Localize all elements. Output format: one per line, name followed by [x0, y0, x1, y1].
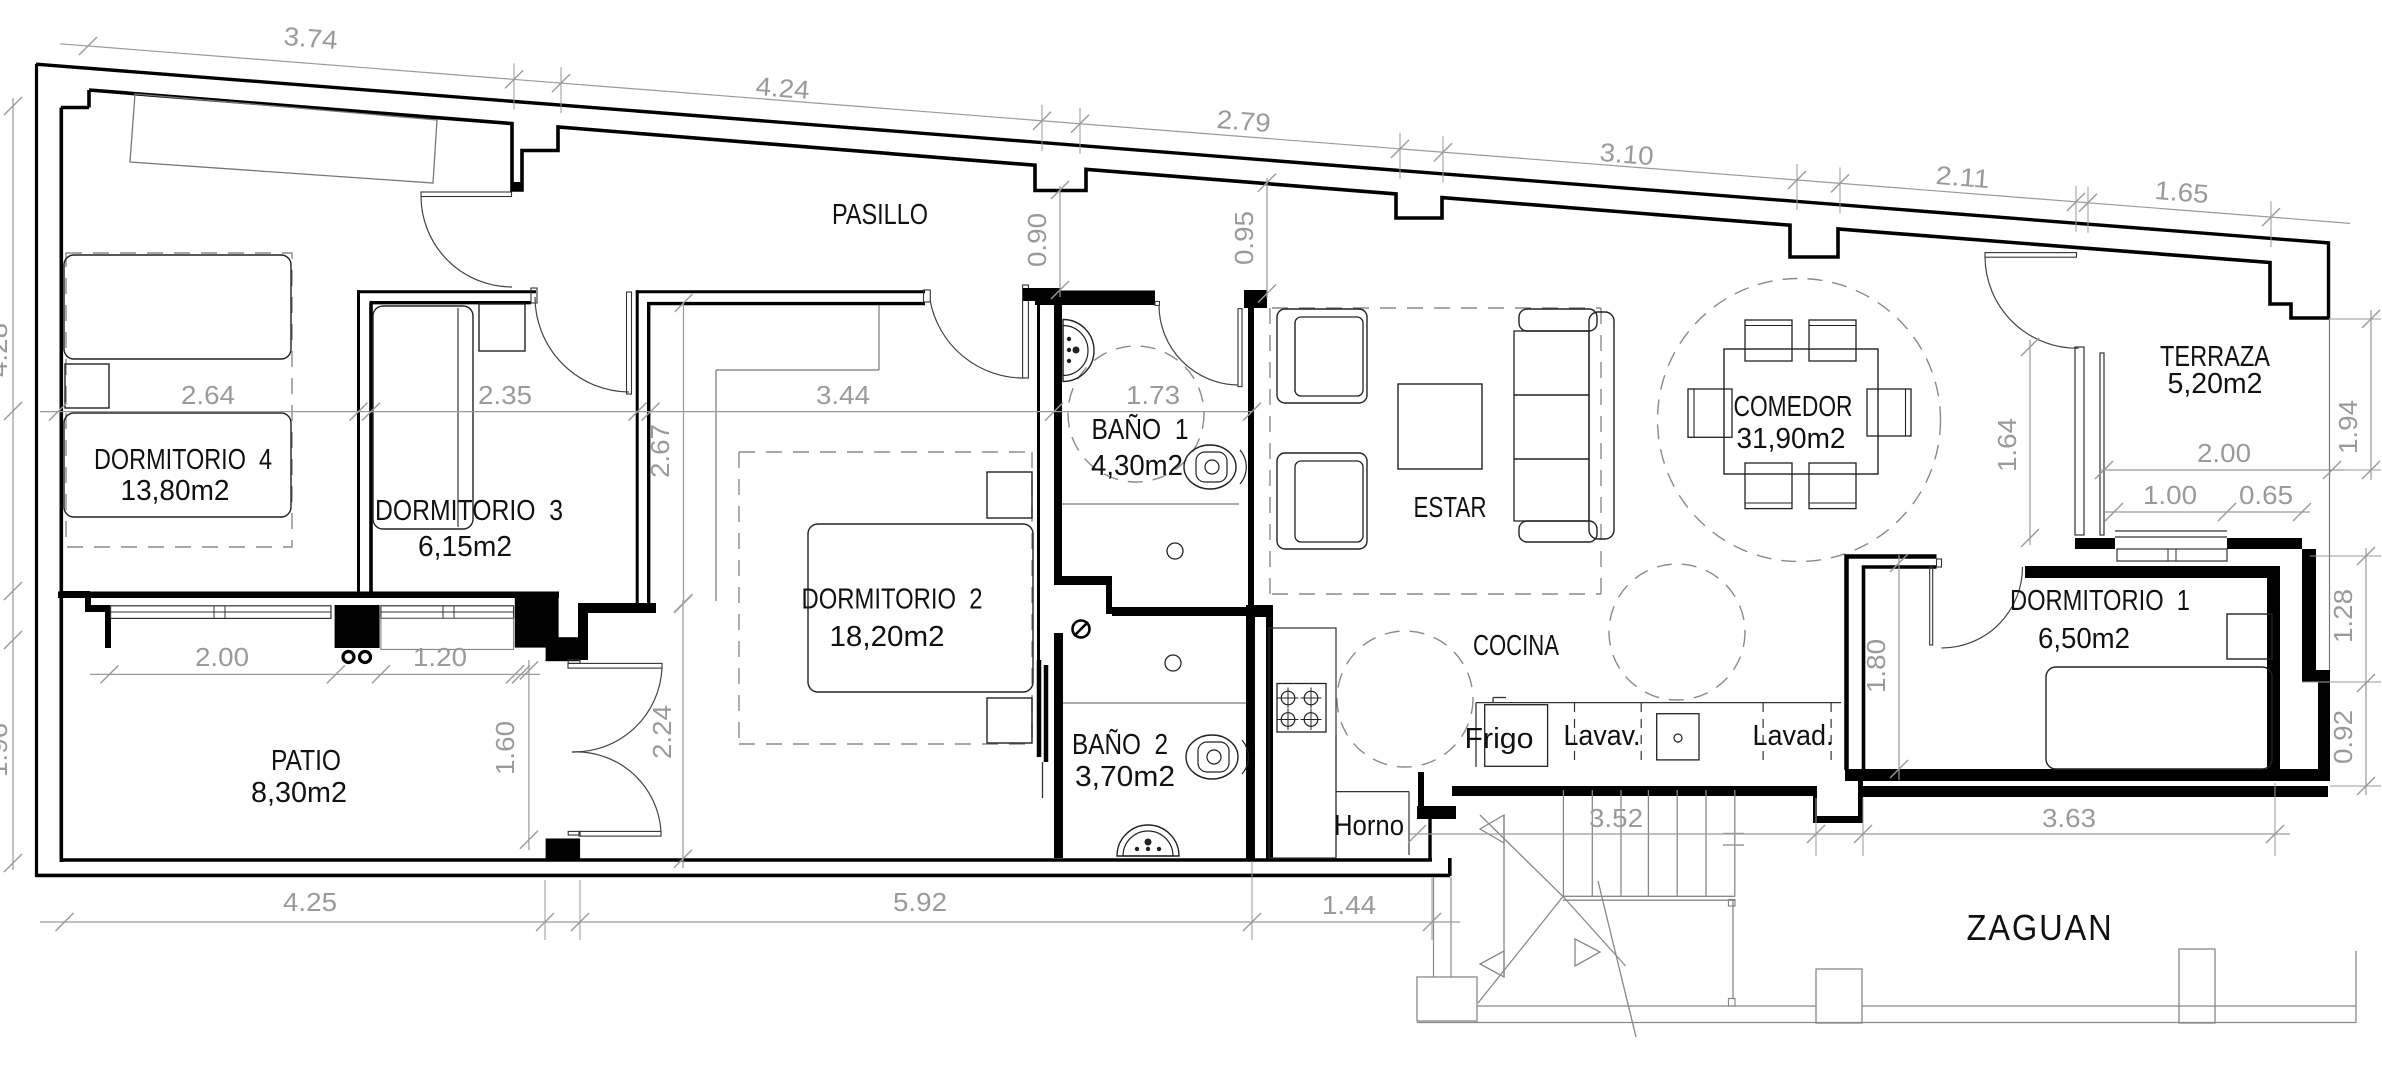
svg-text:2.67: 2.67 [645, 424, 675, 478]
svg-text:5.92: 5.92 [893, 887, 947, 917]
svg-text:ESTAR: ESTAR [1414, 492, 1487, 524]
svg-text:COCINA: COCINA [1473, 630, 1559, 662]
svg-text:1.65: 1.65 [2154, 175, 2210, 209]
svg-text:13,80m2: 13,80m2 [121, 475, 230, 507]
svg-text:PATIO: PATIO [271, 745, 341, 777]
svg-text:0.65: 0.65 [2239, 480, 2293, 510]
svg-text:3.10: 3.10 [1599, 137, 1655, 171]
svg-text:1.44: 1.44 [1322, 890, 1376, 920]
svg-text:31,90m2: 31,90m2 [1737, 423, 1846, 455]
svg-text:DORMITORIO 3: DORMITORIO 3 [375, 495, 563, 527]
svg-text:6,15m2: 6,15m2 [418, 531, 512, 563]
svg-text:2.79: 2.79 [1216, 104, 1272, 138]
svg-text:4.24: 4.24 [755, 71, 811, 105]
svg-text:1.20: 1.20 [413, 642, 467, 672]
svg-text:Lavav.: Lavav. [1564, 720, 1641, 752]
svg-text:BAÑO 2: BAÑO 2 [1072, 727, 1168, 761]
svg-text:Lavad.: Lavad. [1753, 720, 1834, 752]
svg-text:2.35: 2.35 [478, 380, 532, 410]
svg-text:DORMITORIO 1: DORMITORIO 1 [2010, 585, 2190, 617]
svg-text:2.24: 2.24 [647, 705, 677, 759]
svg-text:1.94: 1.94 [2333, 400, 2363, 454]
svg-text:0.95: 0.95 [1229, 211, 1259, 265]
svg-text:4,30m2: 4,30m2 [1091, 450, 1183, 482]
svg-text:DORMITORIO 2: DORMITORIO 2 [802, 584, 983, 616]
svg-text:2.00: 2.00 [195, 642, 249, 672]
svg-text:4.25: 4.25 [283, 887, 337, 917]
svg-text:6,50m2: 6,50m2 [2038, 623, 2130, 655]
svg-text:3.74: 3.74 [283, 21, 339, 55]
svg-text:8,30m2: 8,30m2 [251, 777, 347, 809]
svg-text:PASILLO: PASILLO [832, 199, 928, 231]
svg-text:1.96: 1.96 [0, 723, 13, 777]
svg-text:1.64: 1.64 [1992, 418, 2022, 472]
svg-text:18,20m2: 18,20m2 [830, 621, 945, 653]
svg-text:1.00: 1.00 [2143, 480, 2197, 510]
svg-text:Horno: Horno [1334, 810, 1404, 842]
svg-text:1.73: 1.73 [1126, 380, 1180, 410]
svg-text:ZAGUAN: ZAGUAN [1967, 907, 2114, 948]
svg-text:3.63: 3.63 [2042, 803, 2096, 833]
svg-text:1.60: 1.60 [490, 721, 520, 775]
svg-text:BAÑO 1: BAÑO 1 [1092, 412, 1189, 446]
svg-text:Frigo: Frigo [1465, 723, 1534, 755]
svg-text:2.11: 2.11 [1935, 160, 1991, 194]
svg-text:5,20m2: 5,20m2 [2168, 368, 2263, 400]
svg-text:3.44: 3.44 [816, 380, 870, 410]
svg-text:3,70m2: 3,70m2 [1075, 761, 1175, 793]
svg-text:1.28: 1.28 [2328, 589, 2358, 643]
svg-text:COMEDOR: COMEDOR [1734, 391, 1853, 423]
svg-text:0.92: 0.92 [2328, 710, 2358, 764]
svg-text:4.28: 4.28 [0, 323, 13, 377]
svg-text:2.00: 2.00 [2197, 438, 2251, 468]
svg-text:DORMITORIO 4: DORMITORIO 4 [94, 444, 272, 476]
svg-text:1.80: 1.80 [1861, 639, 1891, 693]
svg-text:3.52: 3.52 [1589, 803, 1643, 833]
svg-text:0.90: 0.90 [1022, 213, 1052, 267]
svg-text:2.64: 2.64 [181, 380, 235, 410]
